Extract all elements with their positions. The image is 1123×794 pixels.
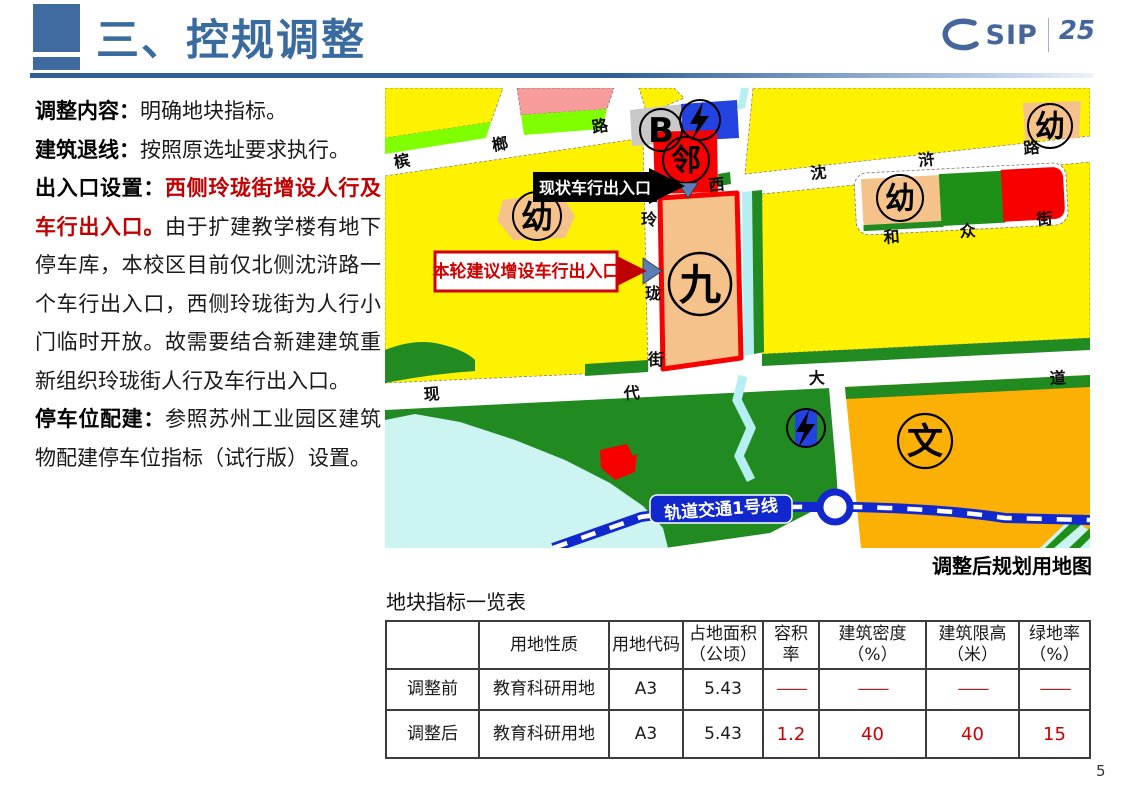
logo-brand-text: SIP <box>986 20 1038 51</box>
text-segment: 出入口设置： <box>35 176 165 200</box>
kindergarten-marker: 幼 <box>885 182 915 217</box>
table-row-before: 调整前 教育科研用地 A3 5.43 —— —— —— —— <box>386 669 1090 710</box>
cell: —— <box>926 669 1019 710</box>
road-label: 街 <box>647 350 664 369</box>
table-row-after: 调整后 教育科研用地 A3 5.43 1.2 40 40 15 <box>386 710 1090 758</box>
red-parcel <box>1001 167 1066 222</box>
description-paragraph: 出入口设置：西侧玲珑街增设人行及车行出入口。由于扩建教学楼有地下停车库，本校区目… <box>35 169 381 400</box>
cell: 教育科研用地 <box>479 710 609 758</box>
canal-green-edge <box>752 190 764 354</box>
header-land-code: 用地代码 <box>609 621 683 669</box>
sip-logo: SIP 25 <box>938 16 1095 54</box>
road-label: 西 <box>707 174 725 195</box>
header-empty <box>386 621 479 669</box>
description-paragraph: 停车位配建：参照苏州工业园区建筑物配建停车位指标（试行版）设置。 <box>35 400 381 477</box>
text-segment: 建筑退线： <box>35 138 140 162</box>
neighborhood-marker: 邻 <box>671 144 701 179</box>
page-title: 三、控规调整 <box>96 6 366 68</box>
header-bar-decoration <box>33 57 80 70</box>
school-marker: 九 <box>679 261 721 310</box>
cell: 5.43 <box>683 710 763 758</box>
cultural-marker: 文 <box>907 422 943 463</box>
cell: A3 <box>609 710 683 758</box>
canal <box>742 191 754 356</box>
road-label: 浒 <box>917 149 935 170</box>
road-label: 沈 <box>809 162 827 183</box>
header-square-decoration <box>33 4 80 52</box>
header-green-ratio: 绿地率（%） <box>1019 621 1090 669</box>
text-segment: 调整内容： <box>35 99 140 123</box>
cell: 15 <box>1019 710 1090 758</box>
existing-entrance-callout-label: 现状车行出入口 <box>539 179 651 198</box>
header-far: 容积率 <box>763 621 819 669</box>
road-label: 众 <box>959 221 977 241</box>
cell: —— <box>819 669 926 710</box>
cell: 40 <box>926 710 1019 758</box>
page-number: 5 <box>1096 762 1106 780</box>
sip-swoosh-icon <box>938 16 980 54</box>
road-label: 道 <box>1049 368 1066 388</box>
description-paragraph: 建筑退线：按照原选址要求执行。 <box>35 131 381 170</box>
road-label: 槟 <box>392 150 411 171</box>
road-label: 代 <box>622 383 640 403</box>
road-label: 大 <box>808 368 825 388</box>
green-parcel <box>939 171 1006 226</box>
plot-index-table: 用地性质 用地代码 占地面积（公顷） 容积率 建筑密度（%） 建筑限高（米） 绿… <box>385 620 1091 759</box>
logo-divider <box>1048 18 1049 52</box>
description-paragraph: 调整内容：明确地块指标。 <box>35 92 381 131</box>
proposed-entrance-callout-label: 本轮建议增设车行出入口 <box>433 261 620 282</box>
road-label: 榔 <box>490 133 509 154</box>
road-label: 玲 <box>641 210 658 229</box>
road-label: 街 <box>1035 209 1053 229</box>
planning-land-use-map: 幼 B 邻 幼 幼 九 <box>385 88 1090 548</box>
metro-station <box>820 492 850 522</box>
text-segment: 按照原选址要求执行。 <box>140 138 350 162</box>
map-caption: 调整后规划用地图 <box>700 550 1092 579</box>
text-segment: 明确地块指标。 <box>140 99 287 123</box>
cell: —— <box>763 669 819 710</box>
road-label: 现 <box>423 384 440 404</box>
header-divider <box>30 73 1093 78</box>
row-label: 调整前 <box>386 669 479 710</box>
kindergarten-marker: 幼 <box>1035 110 1065 145</box>
logo-anniversary-text: 25 <box>1059 16 1095 46</box>
cell: A3 <box>609 669 683 710</box>
cell: 40 <box>819 710 926 758</box>
cell: 5.43 <box>683 669 763 710</box>
cell: 教育科研用地 <box>479 669 609 710</box>
road-label: 路 <box>1022 137 1041 158</box>
table-header-row: 用地性质 用地代码 占地面积（公顷） 容积率 建筑密度（%） 建筑限高（米） 绿… <box>386 621 1090 669</box>
header-density: 建筑密度（%） <box>819 621 926 669</box>
text-segment: 由于扩建教学楼有地下停车库，本校区目前仅北侧沈浒路一个车行出入口，西侧玲珑街为人… <box>35 215 381 393</box>
row-label: 调整后 <box>386 710 479 758</box>
kindergarten-marker: 幼 <box>521 198 553 236</box>
description-text-column: 调整内容：明确地块指标。建筑退线：按照原选址要求执行。出入口设置：西侧玲珑街增设… <box>35 92 381 477</box>
header-height-limit: 建筑限高（米） <box>926 621 1019 669</box>
text-segment: 停车位配建： <box>35 407 165 431</box>
header-land-use: 用地性质 <box>479 621 609 669</box>
road-label: 和 <box>883 227 900 247</box>
cell: 1.2 <box>763 710 819 758</box>
cell: —— <box>1019 669 1090 710</box>
slide-page: 三、控规调整 SIP 25 调整内容：明确地块指标。建筑退线：按照原选址要求执行… <box>0 0 1123 794</box>
table-title: 地块指标一览表 <box>386 586 526 615</box>
road-label: 珑 <box>645 284 661 303</box>
header-area: 占地面积（公顷） <box>683 621 763 669</box>
